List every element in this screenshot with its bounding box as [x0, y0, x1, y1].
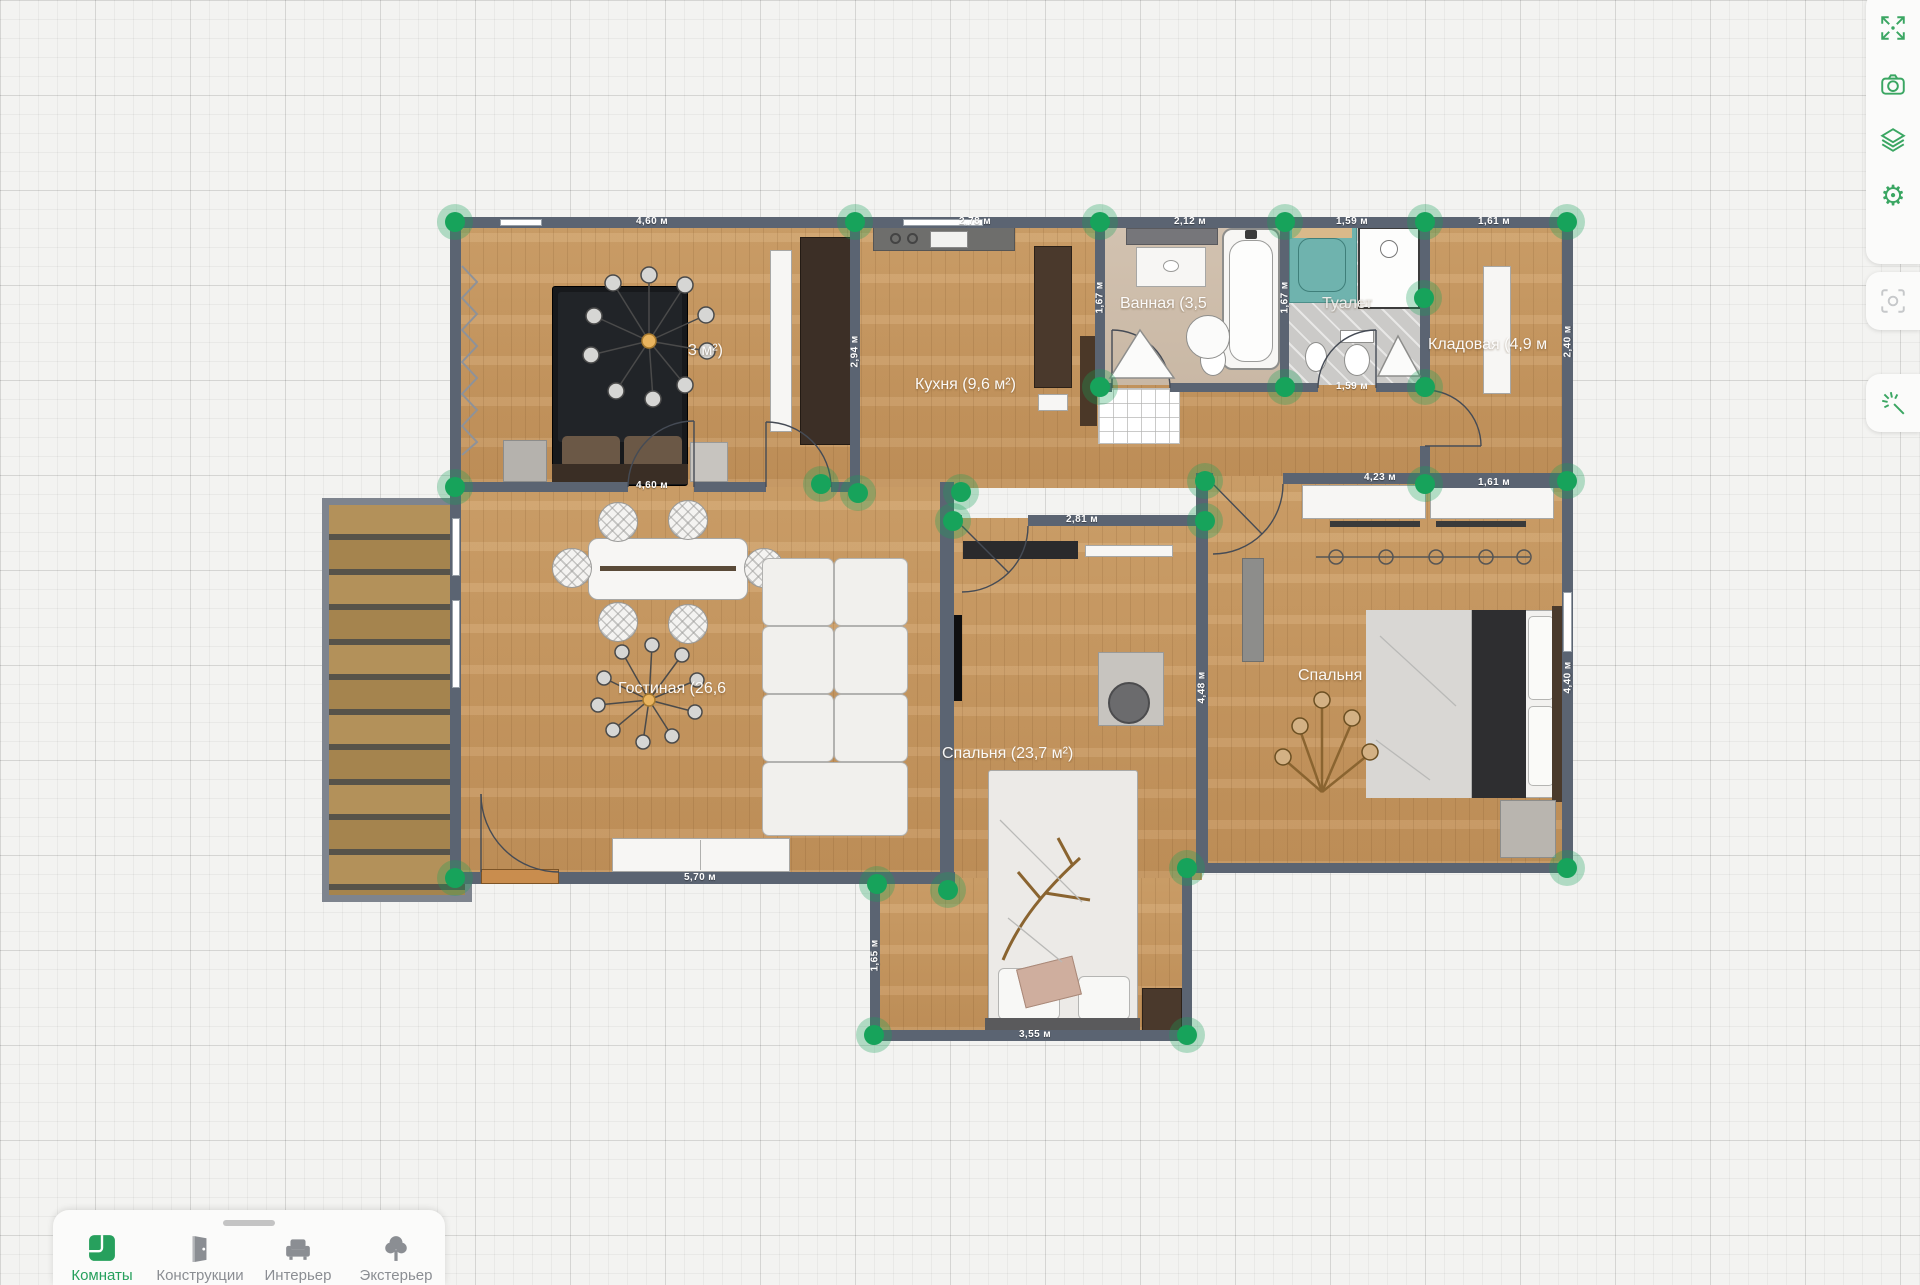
vertex-handle[interactable]	[1275, 377, 1295, 397]
kitchen-tall-cabinet[interactable]	[1034, 246, 1072, 388]
sink-basin	[1163, 260, 1179, 272]
view-tools-group: ⚙	[1866, 0, 1920, 264]
nightstand[interactable]	[503, 440, 547, 482]
vertex-handle[interactable]	[943, 511, 963, 531]
dim-label: 2,40 м	[1563, 310, 1574, 374]
wardrobe[interactable]	[1302, 485, 1426, 519]
vertex-handle[interactable]	[1177, 1025, 1197, 1045]
bidet-bowl[interactable]	[1305, 342, 1327, 372]
tab-exterior-label: Экстерьер	[360, 1267, 433, 1284]
dim-label: 4,40 м	[1563, 646, 1574, 710]
door-icon	[186, 1234, 214, 1262]
category-tabs: Комнаты Конструкции Интерьер	[53, 1234, 445, 1284]
wall[interactable]	[450, 217, 1573, 228]
vanity-counter[interactable]	[1126, 228, 1218, 245]
vertex-handle[interactable]	[1557, 858, 1577, 878]
screenshot-focus-icon	[1879, 287, 1907, 315]
camera-icon	[1879, 70, 1907, 98]
layers-button[interactable]	[1866, 112, 1920, 168]
shower-head	[1380, 240, 1398, 258]
tree-icon	[382, 1234, 410, 1262]
dim-label: 1,61 м	[1462, 477, 1526, 488]
dim-label: 1,59 м	[1320, 216, 1384, 227]
dining-chair[interactable]	[598, 502, 638, 542]
vertex-handle[interactable]	[848, 483, 868, 503]
wardrobe-shelf-dark	[1436, 521, 1526, 527]
vertex-handle[interactable]	[1414, 288, 1434, 308]
magic-wand-icon	[1879, 389, 1907, 417]
vertex-handle[interactable]	[938, 880, 958, 900]
sideboard-divider	[700, 840, 701, 870]
gear-icon: ⚙	[1880, 182, 1905, 210]
tab-exterior[interactable]: Экстерьер	[347, 1234, 445, 1284]
bed-duvet	[558, 292, 682, 442]
dim-label: 1,59 м	[1320, 381, 1384, 392]
vertex-handle[interactable]	[811, 474, 831, 494]
screenshot-group	[1866, 272, 1920, 330]
vertex-handle[interactable]	[1177, 858, 1197, 878]
settings-button[interactable]: ⚙	[1866, 168, 1920, 224]
vertex-handle[interactable]	[1275, 212, 1295, 232]
wardrobe-shelf-dark	[1330, 521, 1420, 527]
vertex-handle[interactable]	[951, 482, 971, 502]
vertex-handle[interactable]	[445, 477, 465, 497]
bed-blanket	[1366, 610, 1472, 798]
kitchen-sink	[930, 231, 968, 248]
room-label-bedroom-small: 3 м²)	[688, 342, 723, 360]
room-label-bedroom-right: Спальня	[1298, 667, 1366, 685]
tab-interior[interactable]: Интерьер	[249, 1234, 347, 1284]
nightstand[interactable]	[690, 442, 728, 482]
sofa-cushion[interactable]	[762, 694, 834, 762]
dim-label: 4,48 м	[1197, 656, 1208, 720]
shower-shelf	[1292, 227, 1352, 238]
window[interactable]	[500, 219, 542, 226]
screenshot-focus-button[interactable]	[1866, 273, 1920, 329]
bathtub-faucet	[1245, 230, 1257, 239]
bathtub-inner	[1229, 240, 1273, 362]
dining-chair[interactable]	[598, 602, 638, 642]
window[interactable]	[452, 518, 460, 576]
table-runner	[600, 566, 736, 571]
door-leaf-wood[interactable]	[481, 869, 559, 884]
vertex-handle[interactable]	[864, 1025, 884, 1045]
armchair-icon	[284, 1234, 312, 1262]
fit-screen-button[interactable]	[1866, 0, 1920, 56]
vertex-handle[interactable]	[445, 212, 465, 232]
tab-interior-label: Интерьер	[265, 1267, 332, 1284]
vertex-handle[interactable]	[1415, 474, 1435, 494]
window[interactable]	[1563, 592, 1572, 652]
room-label-bathroom: Ванная (3,5	[1120, 295, 1207, 313]
shelf-unit[interactable]	[770, 250, 792, 432]
dining-chair[interactable]	[668, 500, 708, 540]
magic-wand-button[interactable]	[1866, 375, 1920, 431]
wall-shelf[interactable]	[1085, 545, 1173, 557]
vertex-handle[interactable]	[1557, 471, 1577, 491]
desk-chair[interactable]	[1108, 682, 1150, 724]
stove-burner	[907, 233, 918, 244]
tab-rooms-label: Комнаты	[71, 1267, 132, 1284]
dim-label: 4,23 м	[1348, 472, 1412, 483]
fit-screen-icon	[1879, 14, 1907, 42]
camera-button[interactable]	[1866, 56, 1920, 112]
vertex-handle[interactable]	[1090, 212, 1110, 232]
wardrobe-dark[interactable]	[800, 237, 852, 445]
laundry-stool[interactable]	[1186, 315, 1230, 359]
tab-constructions-label: Конструкции	[156, 1267, 243, 1284]
dining-chair[interactable]	[552, 548, 592, 588]
shower-tray-inner	[1298, 238, 1346, 292]
wardrobe[interactable]	[1430, 485, 1554, 519]
effects-group	[1866, 374, 1920, 432]
dim-label: 3,55 м	[1003, 1029, 1067, 1040]
sofa-cushion[interactable]	[762, 626, 834, 694]
room-label-kitchen: Кухня (9,6 м²)	[915, 376, 1016, 394]
dim-label: 4,60 м	[620, 216, 684, 227]
room-label-bedroom-main: Спальня (23,7 м²)	[942, 745, 1073, 763]
dim-label: 1,67 м	[1280, 266, 1291, 330]
stove-burner	[890, 233, 901, 244]
sofa-cushion[interactable]	[762, 558, 834, 626]
tall-cabinet-gray[interactable]	[1242, 558, 1264, 662]
vertex-handle[interactable]	[1557, 212, 1577, 232]
tab-rooms[interactable]: Комнаты	[53, 1234, 151, 1284]
dim-label: 4,60 м	[620, 480, 684, 491]
plan-canvas[interactable]: 3 м²) Кухня (9,6 м²) Ванная (3,5 Туалет …	[0, 0, 1920, 1280]
wall[interactable]	[940, 482, 954, 882]
toilet-bowl	[1344, 344, 1370, 376]
room-label-living: Гостиная (26,6	[618, 680, 726, 698]
vertex-handle[interactable]	[445, 868, 465, 888]
wall[interactable]	[1170, 383, 1318, 392]
room-label-storage: Кладовая (4,9 м	[1428, 336, 1562, 354]
bed-pillow	[1528, 616, 1554, 700]
tab-constructions[interactable]: Конструкции	[151, 1234, 249, 1284]
kitchen-cabinet-door	[1038, 394, 1068, 411]
storage-shelving[interactable]	[1483, 266, 1511, 394]
tv-console-dark[interactable]	[963, 541, 1078, 559]
category-panel: Комнаты Конструкции Интерьер	[53, 1210, 445, 1285]
dim-label: 1,67 м	[1095, 266, 1106, 330]
dining-chair[interactable]	[668, 604, 708, 644]
nightstand-dark[interactable]	[1142, 988, 1182, 1036]
vertex-handle[interactable]	[1090, 377, 1110, 397]
layers-icon	[1879, 126, 1907, 154]
sofa-chaise[interactable]	[762, 762, 908, 836]
vertex-handle[interactable]	[1195, 511, 1215, 531]
sofa-cushion[interactable]	[834, 694, 908, 762]
dim-label: 2,12 м	[1158, 216, 1222, 227]
floor-planner-app: { "plan": { "room_labels": { "bedroom_sm…	[0, 0, 1920, 1280]
vertex-handle[interactable]	[867, 874, 887, 894]
dim-label: 1,65 м	[870, 924, 881, 988]
wall[interactable]	[1196, 863, 1573, 873]
vertex-handle[interactable]	[1415, 377, 1435, 397]
dim-label: 2,81 м	[1050, 514, 1114, 525]
sideboard[interactable]	[612, 838, 790, 872]
sofa-cushion[interactable]	[834, 626, 908, 694]
dim-label: 2,78 м	[943, 216, 1007, 227]
wall[interactable]	[694, 482, 766, 492]
wall[interactable]	[450, 482, 628, 492]
bed-pillow	[1528, 706, 1554, 786]
dresser[interactable]	[1500, 800, 1556, 858]
bed-pillow	[1078, 976, 1130, 1020]
sofa-cushion[interactable]	[834, 558, 908, 626]
bath-mat-tiles	[1098, 388, 1180, 444]
window[interactable]	[452, 600, 460, 688]
dim-label: 2,94 м	[850, 320, 861, 384]
wall[interactable]	[1182, 866, 1192, 1041]
vertex-handle[interactable]	[1415, 212, 1435, 232]
dim-label: 1,61 м	[1462, 216, 1526, 227]
room-label-toilet: Туалет	[1322, 295, 1373, 313]
dim-label: 5,70 м	[668, 872, 732, 883]
rooms-icon	[88, 1234, 116, 1262]
panel-drag-handle[interactable]	[223, 1220, 275, 1226]
bed-throw-dark	[1472, 610, 1526, 798]
toilet-tank[interactable]	[1340, 330, 1374, 343]
wall[interactable]	[559, 872, 955, 884]
vertex-handle[interactable]	[845, 212, 865, 232]
vertex-handle[interactable]	[1195, 471, 1215, 491]
